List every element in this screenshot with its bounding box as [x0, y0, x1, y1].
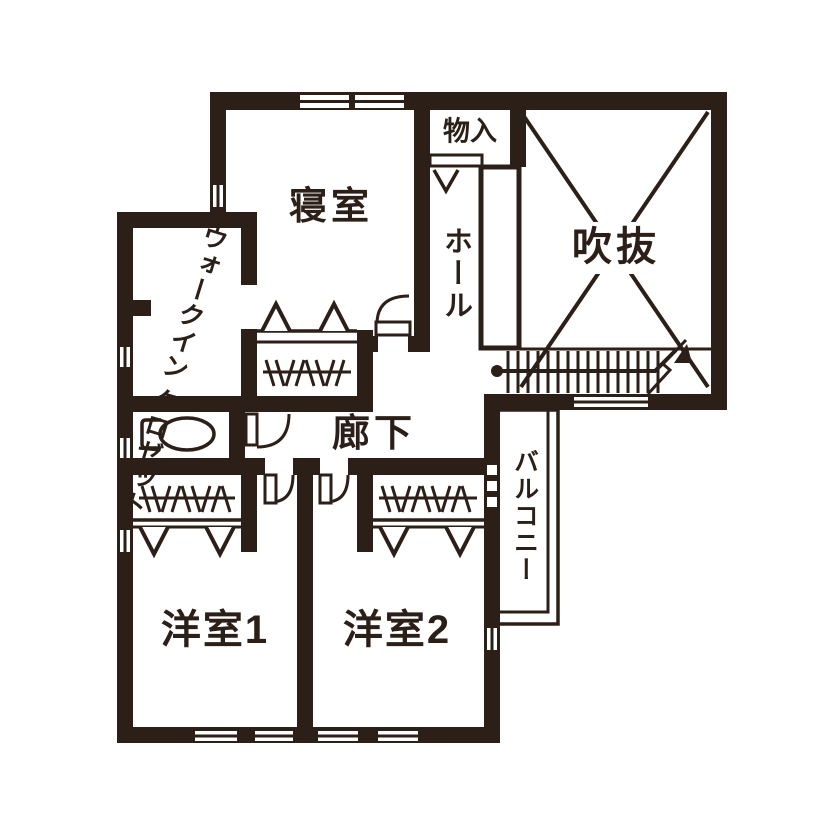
closet-hanger-pipe	[263, 360, 351, 386]
wall-bedroom-south-b	[408, 336, 430, 352]
void-label: 吹抜	[566, 225, 666, 269]
door-swing-arc	[257, 414, 289, 447]
corridor-label: 廊下	[332, 415, 416, 453]
folding-door-marker	[446, 527, 474, 554]
door-swing-arc	[377, 296, 409, 324]
window-room1-west	[120, 530, 130, 552]
window-wic-west	[120, 347, 130, 367]
folding-door-marker	[434, 170, 458, 191]
folding-door-marker	[380, 527, 408, 554]
closet-hanger-pipe	[379, 486, 477, 512]
door-leaf	[320, 475, 331, 503]
room1-label: 洋室1	[161, 610, 269, 650]
storage-door	[430, 155, 482, 191]
door-leaf	[376, 322, 410, 335]
folding-door-marker	[262, 304, 290, 331]
wall-room1-closet-east	[241, 458, 257, 552]
wall-bedroom-east	[414, 110, 430, 336]
room2-door	[320, 475, 348, 503]
door-leaf	[265, 475, 276, 503]
floor-plan-drawing	[0, 0, 840, 840]
floor-plan: 寝室 物入 ホール 吹抜 廊下 バルコニー 洋室1 洋室2 ウォークイン クロゼ…	[0, 0, 840, 840]
bedroom-closet	[257, 304, 357, 386]
wall-east-void	[711, 92, 727, 410]
wall-corridor-south-b	[293, 458, 320, 475]
wall-rooms-divider	[297, 475, 313, 743]
wall-top	[210, 92, 727, 110]
toilet-door	[246, 414, 289, 447]
storage-label: 物入	[443, 119, 497, 146]
void-railing	[481, 167, 519, 348]
stair-start-dot	[491, 365, 503, 377]
room1-door	[265, 475, 293, 503]
wall-bedroom-closet-east	[357, 330, 373, 412]
window-bedroom-top	[300, 95, 404, 108]
wall-bedroom-west	[210, 92, 226, 228]
wall-room2-closet-west	[357, 458, 373, 552]
folding-door-marker	[206, 527, 234, 554]
folding-door-marker	[320, 304, 348, 331]
wall-toilet-east	[229, 412, 245, 458]
room2-closet	[373, 486, 484, 554]
wall-east-lower	[484, 394, 500, 743]
window-below-stairs	[574, 397, 648, 407]
hall-label: ホール	[441, 226, 470, 322]
bedroom-door	[376, 296, 410, 335]
wall-west-stub	[133, 300, 151, 316]
door-leaf	[246, 414, 257, 445]
room2-label: 洋室2	[343, 610, 451, 650]
bedroom-label: 寝室	[289, 188, 373, 226]
window-bedroom-west	[213, 185, 223, 207]
wall-wic-east-upper	[241, 212, 257, 285]
wall-wic-top	[117, 212, 257, 228]
window-room2-east	[487, 628, 497, 650]
balcony-label: バルコニー	[512, 449, 537, 584]
balcony-opening-dashes	[487, 465, 497, 507]
wall-storage-east	[510, 110, 526, 167]
folding-door-marker	[140, 527, 168, 554]
